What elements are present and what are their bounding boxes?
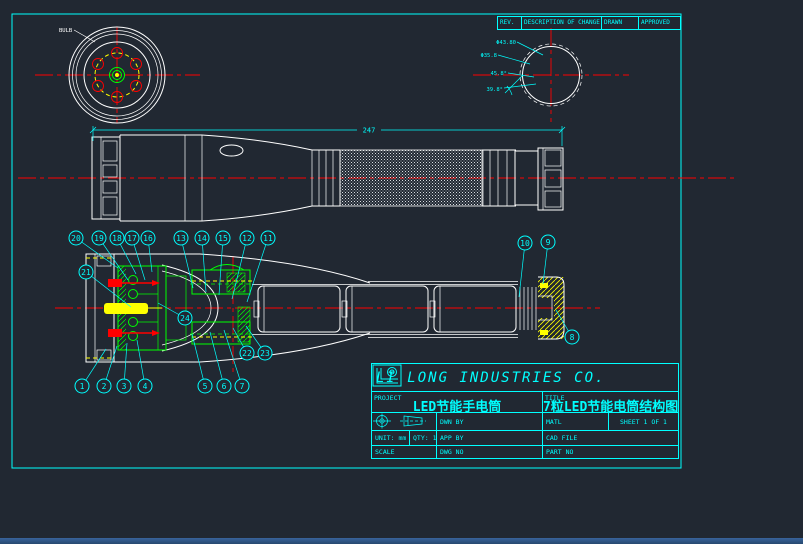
svg-text:13: 13 [176, 234, 186, 243]
detail-dim-1: Φ43.80 [496, 40, 516, 46]
knurled-grip [340, 150, 482, 206]
sec-envelope-top [200, 254, 370, 283]
led-contact-arrow [152, 330, 160, 336]
svg-text:3: 3 [122, 382, 127, 391]
qty-label: QTY: 1 [413, 434, 436, 442]
svg-text:23: 23 [260, 349, 270, 358]
sec-tailcap-hatch-right [554, 296, 564, 320]
balloon-24: 24 [178, 311, 192, 325]
center-bulb [104, 303, 148, 314]
svg-text:20: 20 [71, 234, 81, 243]
balloon-1: 1 [75, 379, 89, 393]
taper-bottom [202, 206, 312, 221]
part-no-cell: PART NO [542, 445, 678, 458]
svg-text:19: 19 [94, 234, 104, 243]
dim-leader [517, 42, 543, 55]
company-row: LI LONG INDUSTRIES CO. [372, 364, 678, 391]
switch-button [220, 145, 243, 156]
led-body [129, 290, 138, 299]
svg-text:16: 16 [143, 234, 153, 243]
project-value: LED节能手电筒 [413, 391, 501, 412]
balloon-5: 5 [198, 379, 212, 393]
balloon-11: 11 [261, 231, 275, 245]
detail-dim-3: 45.8° [490, 71, 507, 77]
matl-cell: MATL [542, 412, 608, 430]
balloon-8: 8 [565, 330, 579, 344]
bezel-seg [103, 165, 117, 177]
svg-text:2: 2 [102, 382, 107, 391]
battery-cell [346, 286, 428, 332]
svg-text:7: 7 [240, 382, 245, 391]
balloon-16: 16 [141, 231, 155, 245]
length-dimension: 247 [363, 127, 376, 135]
battery-cell [434, 286, 516, 332]
dwg-no-label: DWG NO [440, 448, 463, 456]
leader-line-5 [192, 334, 205, 386]
led-contact-red [108, 279, 122, 287]
dwn-by-cell: DWN BY [436, 412, 542, 430]
svg-text:21: 21 [81, 268, 91, 277]
svg-text:14: 14 [197, 234, 207, 243]
tail-seal [540, 283, 548, 288]
svg-text:9: 9 [546, 238, 551, 247]
unit-cell: UNIT: mm [372, 430, 409, 445]
matl-label: MATL [546, 418, 562, 426]
rev-header: REV. [498, 17, 521, 29]
cad-drawing-page: { "colors": { "background": "#212832", "… [0, 0, 803, 544]
approved-header: APPROVED [638, 17, 680, 29]
center-led-dot [115, 73, 119, 77]
balloon-23: 23 [258, 346, 272, 360]
taper-top [202, 135, 312, 150]
balloon-15: 15 [216, 231, 230, 245]
company-name: LI LONG INDUSTRIES CO. [376, 370, 605, 386]
front-view: BULB [35, 27, 200, 123]
tailcap [538, 148, 563, 210]
svg-text:4: 4 [143, 382, 148, 391]
led-contact-red [108, 329, 122, 337]
balloon-2: 2 [97, 379, 111, 393]
svg-text:8: 8 [570, 333, 575, 342]
description-header: DESCRIPTION OF CHANGE [521, 17, 601, 29]
projection-symbol-icon [372, 413, 430, 429]
svg-text:17: 17 [127, 234, 137, 243]
unit-label: UNIT: mm [375, 434, 406, 442]
title-cell: TITLE 7粒LED节能电筒结构图 [542, 391, 678, 412]
dwn-by-label: DWN BY [440, 418, 463, 426]
led-circle [131, 81, 142, 92]
drawn-header: DRAWN [601, 17, 638, 29]
title-block: LI LONG INDUSTRIES CO. PROJECT LED节能手电筒 … [371, 363, 679, 459]
app-by-label: APP BY [440, 434, 463, 442]
scale-cell: SCALE [372, 445, 436, 458]
svg-text:22: 22 [242, 349, 252, 358]
battery-cell [258, 286, 340, 332]
balloon-17: 17 [125, 231, 139, 245]
cad-file-cell: CAD FILE [542, 430, 678, 445]
project-cell: PROJECT LED节能手电筒 [372, 391, 542, 412]
svg-text:1: 1 [80, 382, 85, 391]
bulb-label: BULB [59, 28, 73, 34]
balloon-10: 10 [518, 236, 532, 250]
svg-text:10: 10 [520, 239, 530, 248]
sec-tailcap-hatch-bottom [538, 318, 564, 339]
switch-dome [210, 265, 244, 271]
svg-text:11: 11 [263, 234, 273, 243]
leader-line-6 [210, 332, 224, 386]
svg-text:15: 15 [218, 234, 228, 243]
tailcap-seg [545, 191, 561, 207]
balloon-20: 20 [69, 231, 83, 245]
balloon-9: 9 [541, 235, 555, 249]
svg-text:18: 18 [112, 234, 122, 243]
overall-dimension: 247 [90, 126, 565, 146]
balloon-12: 12 [240, 231, 254, 245]
bezel-seg [103, 181, 117, 193]
bezel-seg [103, 141, 117, 161]
revision-table: REV. DESCRIPTION OF CHANGE DRAWN APPROVE… [497, 16, 681, 30]
detail-dim-4: 39.8° [486, 87, 503, 93]
led-circle [131, 59, 142, 70]
dim-leader [498, 55, 530, 64]
sheet-text: SHEET 1 OF 1 [620, 418, 667, 426]
angle-leg [505, 75, 523, 93]
projection-symbol-cell [372, 412, 436, 430]
app-by-cell: APP BY [436, 430, 542, 445]
balloon-7: 7 [235, 379, 249, 393]
window-bottom-edge [0, 538, 803, 544]
scale-label: SCALE [375, 448, 395, 456]
led-body [129, 318, 138, 327]
cad-drawing-canvas: BULB Φ43.80 Φ35.8 45.8° 39.8° [0, 0, 803, 544]
balloon-21: 21 [79, 265, 93, 279]
section-view [55, 254, 600, 372]
sec-envelope-bottom [200, 333, 370, 362]
bezel-seg [103, 197, 117, 215]
detail-view: Φ43.80 Φ35.8 45.8° 39.8° [473, 28, 629, 122]
cad-file-label: CAD FILE [546, 434, 577, 442]
svg-text:6: 6 [222, 382, 227, 391]
dwg-no-cell: DWG NO [436, 445, 542, 458]
tail-seal [540, 330, 548, 335]
svg-text:12: 12 [242, 234, 252, 243]
title-label: TITLE [545, 394, 565, 402]
svg-text:5: 5 [203, 382, 208, 391]
tailcap-seg [545, 150, 561, 166]
part-no-label: PART NO [546, 448, 573, 456]
company-logo [372, 364, 406, 387]
detail-dim-2: Φ35.8 [480, 53, 497, 59]
balloon-13: 13 [174, 231, 188, 245]
qty-cell: QTY: 1 [409, 430, 436, 445]
svg-text:24: 24 [180, 314, 190, 323]
balloon-14: 14 [195, 231, 209, 245]
dim-leader [504, 84, 536, 88]
led-contact-arrow [152, 280, 160, 286]
balloon-18: 18 [110, 231, 124, 245]
project-label: PROJECT [374, 394, 401, 402]
balloon-22: 22 [240, 346, 254, 360]
balloon-3: 3 [117, 379, 131, 393]
leader-line-15 [219, 238, 223, 295]
leader-line-13 [181, 238, 193, 288]
sheet-cell: SHEET 1 OF 1 [608, 412, 678, 430]
side-view: 247 [18, 126, 737, 221]
balloon-4: 4 [138, 379, 152, 393]
balloon-6: 6 [217, 379, 231, 393]
tailcap-seg [545, 170, 561, 187]
balloon-19: 19 [92, 231, 106, 245]
